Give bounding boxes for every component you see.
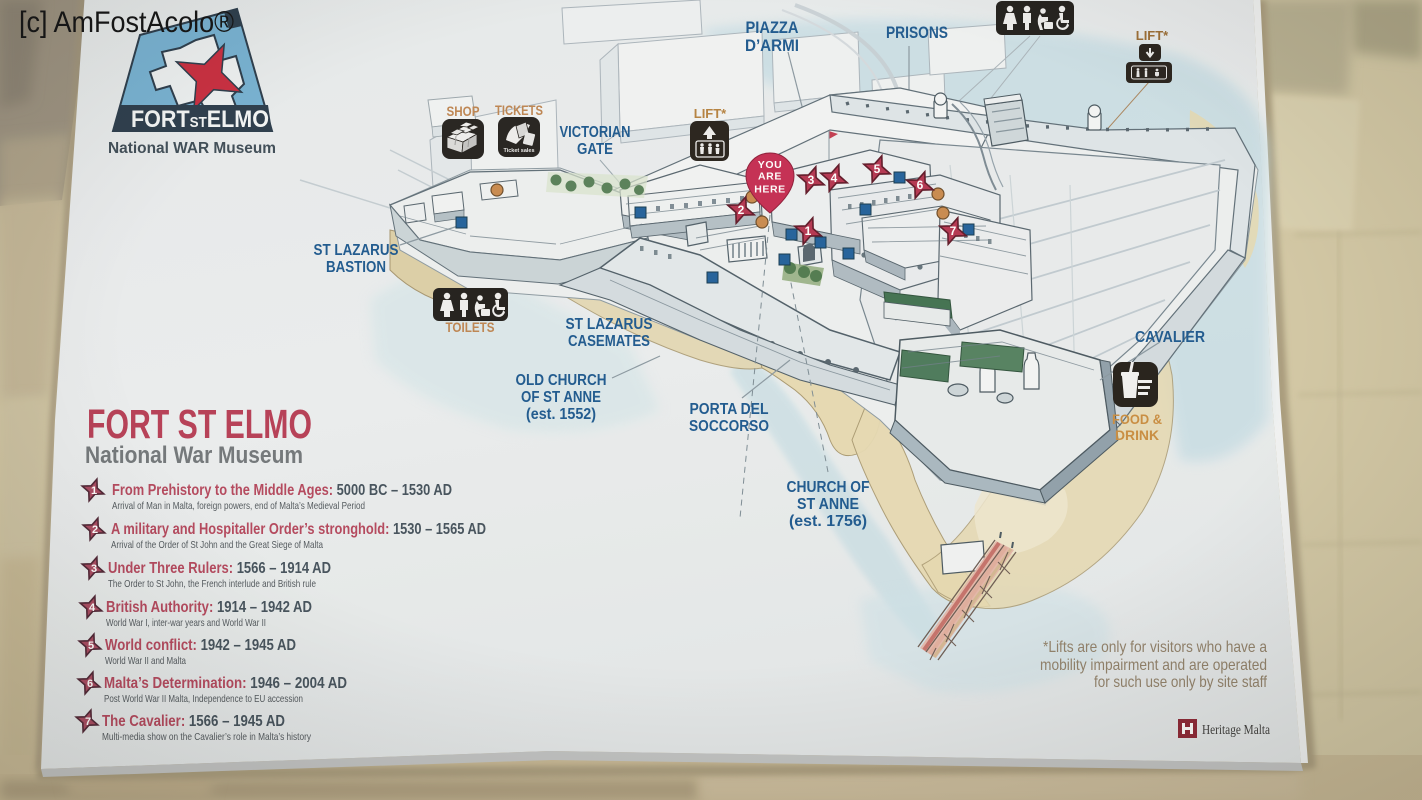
svg-text:[c] AmFostAcolo®: [c] AmFostAcolo®	[19, 6, 234, 39]
